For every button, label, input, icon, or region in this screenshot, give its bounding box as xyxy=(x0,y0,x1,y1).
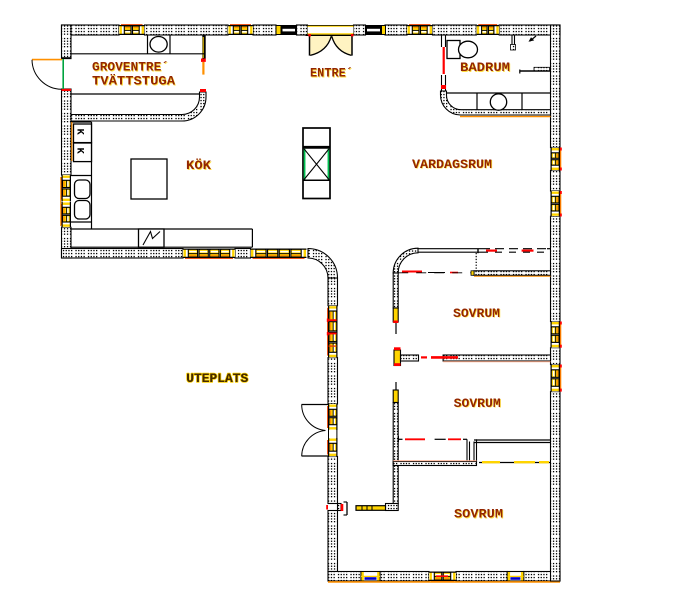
svg-text:SOVRUM: SOVRUM xyxy=(454,507,503,522)
svg-text:UTEPLATS: UTEPLATS xyxy=(186,371,248,386)
svg-text:VARDAGSRUM: VARDAGSRUM xyxy=(412,157,492,172)
svg-text:SOVRUM: SOVRUM xyxy=(454,396,501,411)
svg-text:SOVRUM: SOVRUM xyxy=(453,306,500,321)
svg-text:K: K xyxy=(74,129,86,136)
svg-text:BADRUM: BADRUM xyxy=(460,60,510,75)
svg-text:KÖK: KÖK xyxy=(186,157,211,173)
svg-text:ENTRE´: ENTRE´ xyxy=(310,66,353,81)
svg-text:K: K xyxy=(74,148,86,155)
svg-text:TVÄTTSTUGA: TVÄTTSTUGA xyxy=(92,74,175,89)
svg-text:GROVENTRE´: GROVENTRE´ xyxy=(92,60,169,75)
